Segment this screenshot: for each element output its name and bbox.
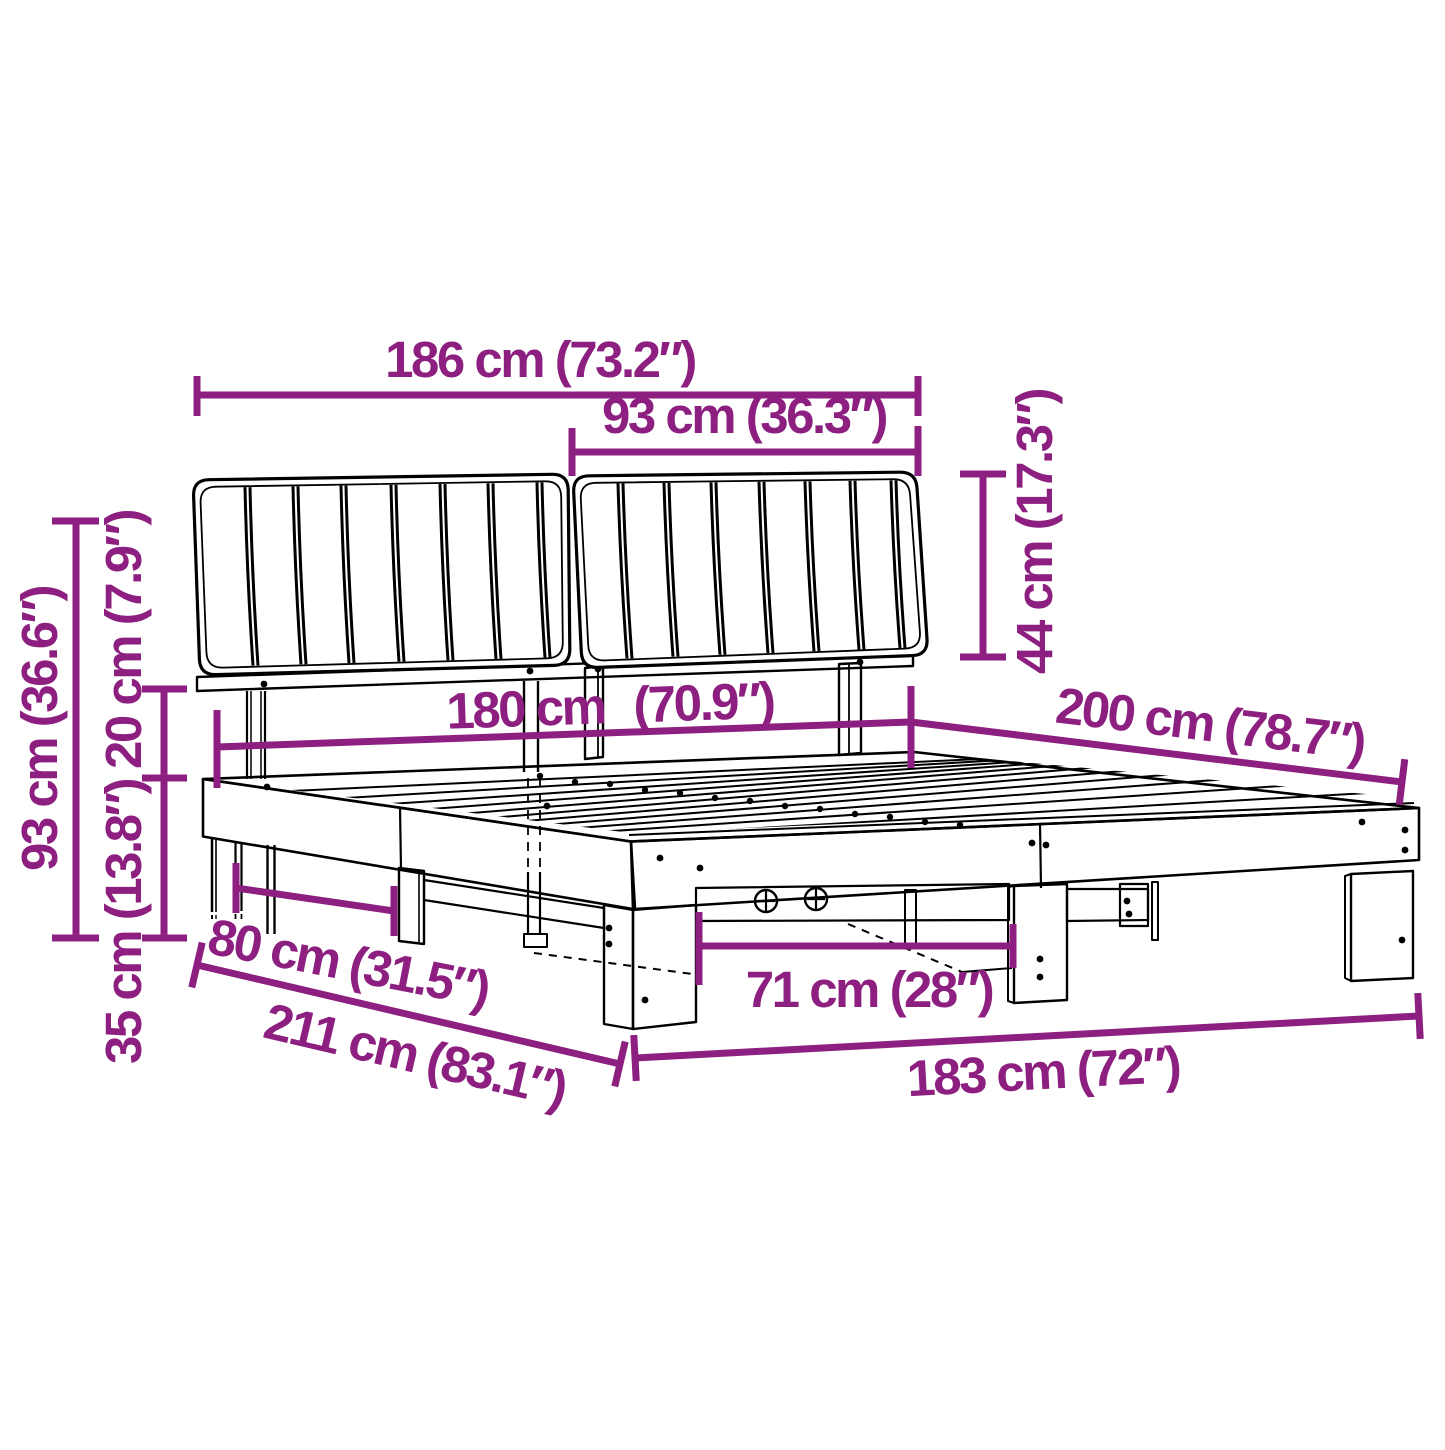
svg-text:93 cm (36.3″): 93 cm (36.3″) — [602, 387, 886, 444]
svg-text:180 cm: 180 cm — [445, 677, 605, 739]
svg-text:93 cm (36.6″): 93 cm (36.6″) — [11, 587, 68, 871]
svg-text:35 cm (13.8″): 35 cm (13.8″) — [95, 780, 152, 1064]
svg-text:(70.9″): (70.9″) — [632, 672, 775, 734]
svg-text:44 cm (17.3″): 44 cm (17.3″) — [1006, 390, 1063, 674]
svg-text:20 cm (7.9″): 20 cm (7.9″) — [95, 510, 152, 769]
svg-text:186 cm (73.2″): 186 cm (73.2″) — [385, 331, 695, 388]
svg-text:71 cm (28″): 71 cm (28″) — [746, 961, 993, 1018]
